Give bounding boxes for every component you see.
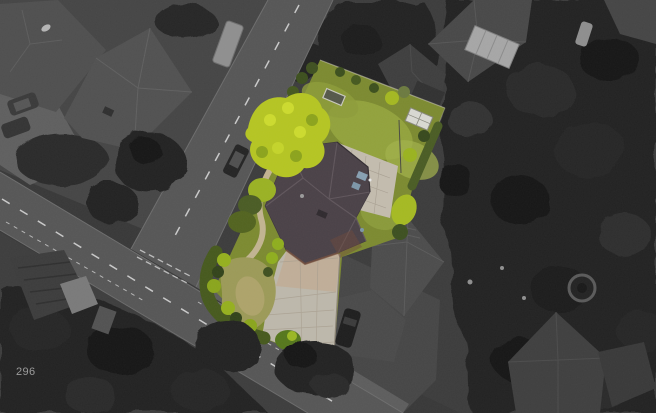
grain-overlay [0,0,656,413]
page-number-label: 296 [16,365,36,379]
aerial-photo[interactable] [0,0,656,413]
aerial-view-screen[interactable]: 296 [0,0,656,413]
